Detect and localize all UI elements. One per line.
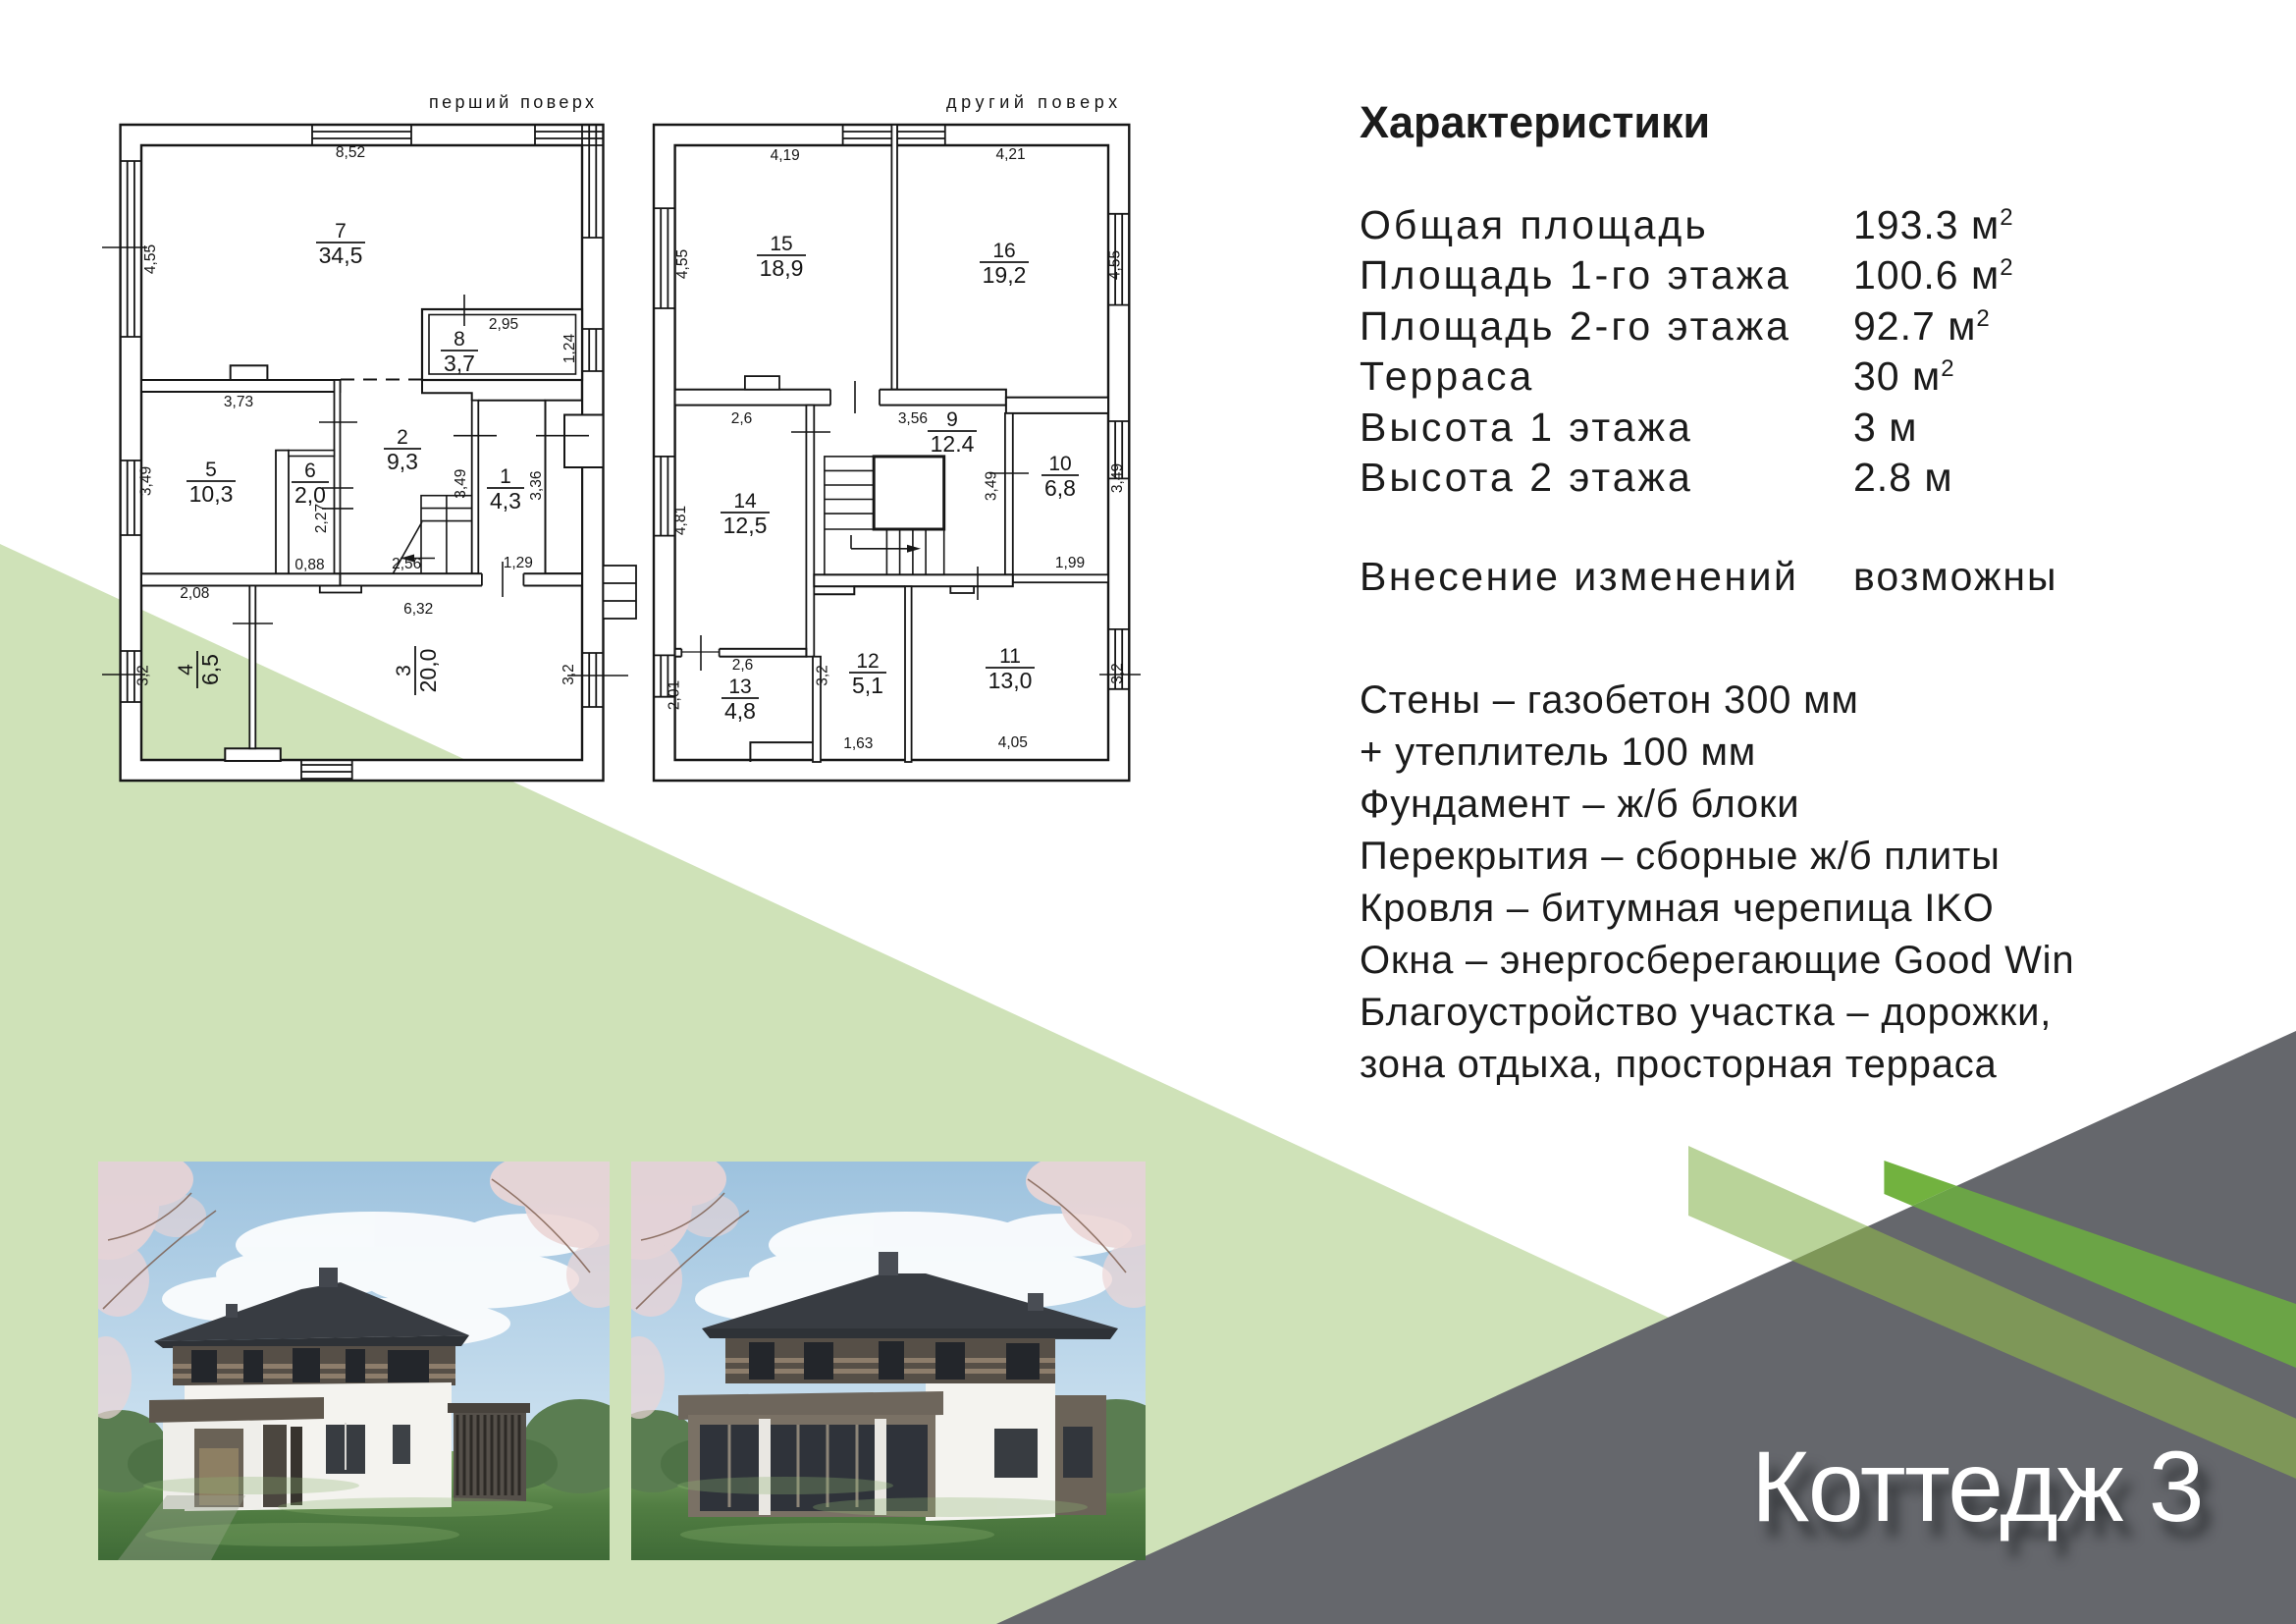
svg-text:2,01: 2,01 bbox=[667, 680, 683, 710]
svg-text:3,2: 3,2 bbox=[815, 665, 831, 686]
svg-text:3,56: 3,56 bbox=[898, 410, 928, 427]
svg-text:18,9: 18,9 bbox=[760, 255, 804, 281]
svg-text:1,63: 1,63 bbox=[843, 735, 873, 752]
svg-text:13,0: 13,0 bbox=[988, 668, 1033, 693]
svg-text:4,21: 4,21 bbox=[996, 146, 1026, 163]
svg-text:3,2: 3,2 bbox=[1109, 663, 1126, 684]
svg-text:6,8: 6,8 bbox=[1044, 475, 1076, 501]
svg-text:12.4: 12.4 bbox=[931, 431, 975, 457]
svg-text:другий поверх: другий поверх bbox=[946, 92, 1122, 112]
svg-text:4,05: 4,05 bbox=[998, 734, 1028, 751]
svg-text:12: 12 bbox=[856, 650, 879, 673]
svg-text:3,49: 3,49 bbox=[1109, 463, 1126, 493]
svg-text:4,55: 4,55 bbox=[1107, 250, 1124, 280]
svg-text:13: 13 bbox=[728, 676, 751, 698]
svg-text:9: 9 bbox=[946, 408, 958, 431]
svg-text:14: 14 bbox=[733, 490, 757, 513]
svg-text:11: 11 bbox=[999, 645, 1021, 668]
svg-text:19,2: 19,2 bbox=[983, 262, 1027, 288]
svg-text:15: 15 bbox=[770, 233, 792, 255]
svg-text:4,55: 4,55 bbox=[674, 249, 691, 279]
svg-text:1,99: 1,99 bbox=[1055, 555, 1085, 571]
svg-text:4,81: 4,81 bbox=[672, 506, 689, 535]
svg-text:3,49: 3,49 bbox=[984, 471, 1000, 501]
svg-text:16: 16 bbox=[992, 240, 1015, 262]
svg-text:4,19: 4,19 bbox=[771, 147, 800, 164]
svg-text:2,6: 2,6 bbox=[732, 657, 754, 674]
svg-text:4,8: 4,8 bbox=[724, 698, 756, 724]
svg-text:5,1: 5,1 bbox=[852, 673, 883, 698]
svg-text:12,5: 12,5 bbox=[723, 513, 768, 538]
svg-text:10: 10 bbox=[1048, 453, 1071, 475]
svg-text:2,6: 2,6 bbox=[731, 410, 753, 427]
